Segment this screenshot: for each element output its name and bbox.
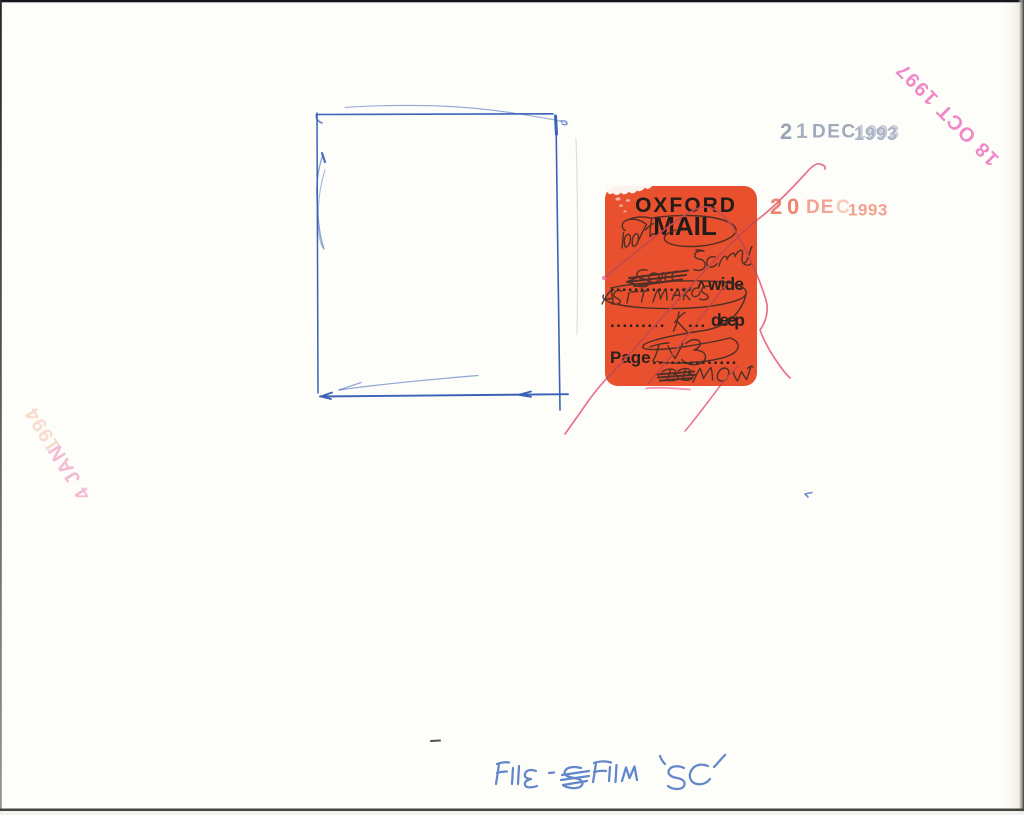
- svg-text:DE: DE: [806, 197, 834, 218]
- svg-text:2: 2: [780, 119, 792, 144]
- svg-text:1993: 1993: [848, 201, 888, 220]
- svg-text:DEC: DEC: [812, 122, 857, 143]
- svg-text:0: 0: [787, 194, 799, 219]
- svg-text:.........: .........: [610, 312, 666, 331]
- svg-text:1: 1: [796, 120, 808, 143]
- svg-text:Page: Page: [610, 348, 651, 367]
- svg-text:2: 2: [770, 194, 782, 219]
- svg-text:1993: 1993: [856, 122, 900, 142]
